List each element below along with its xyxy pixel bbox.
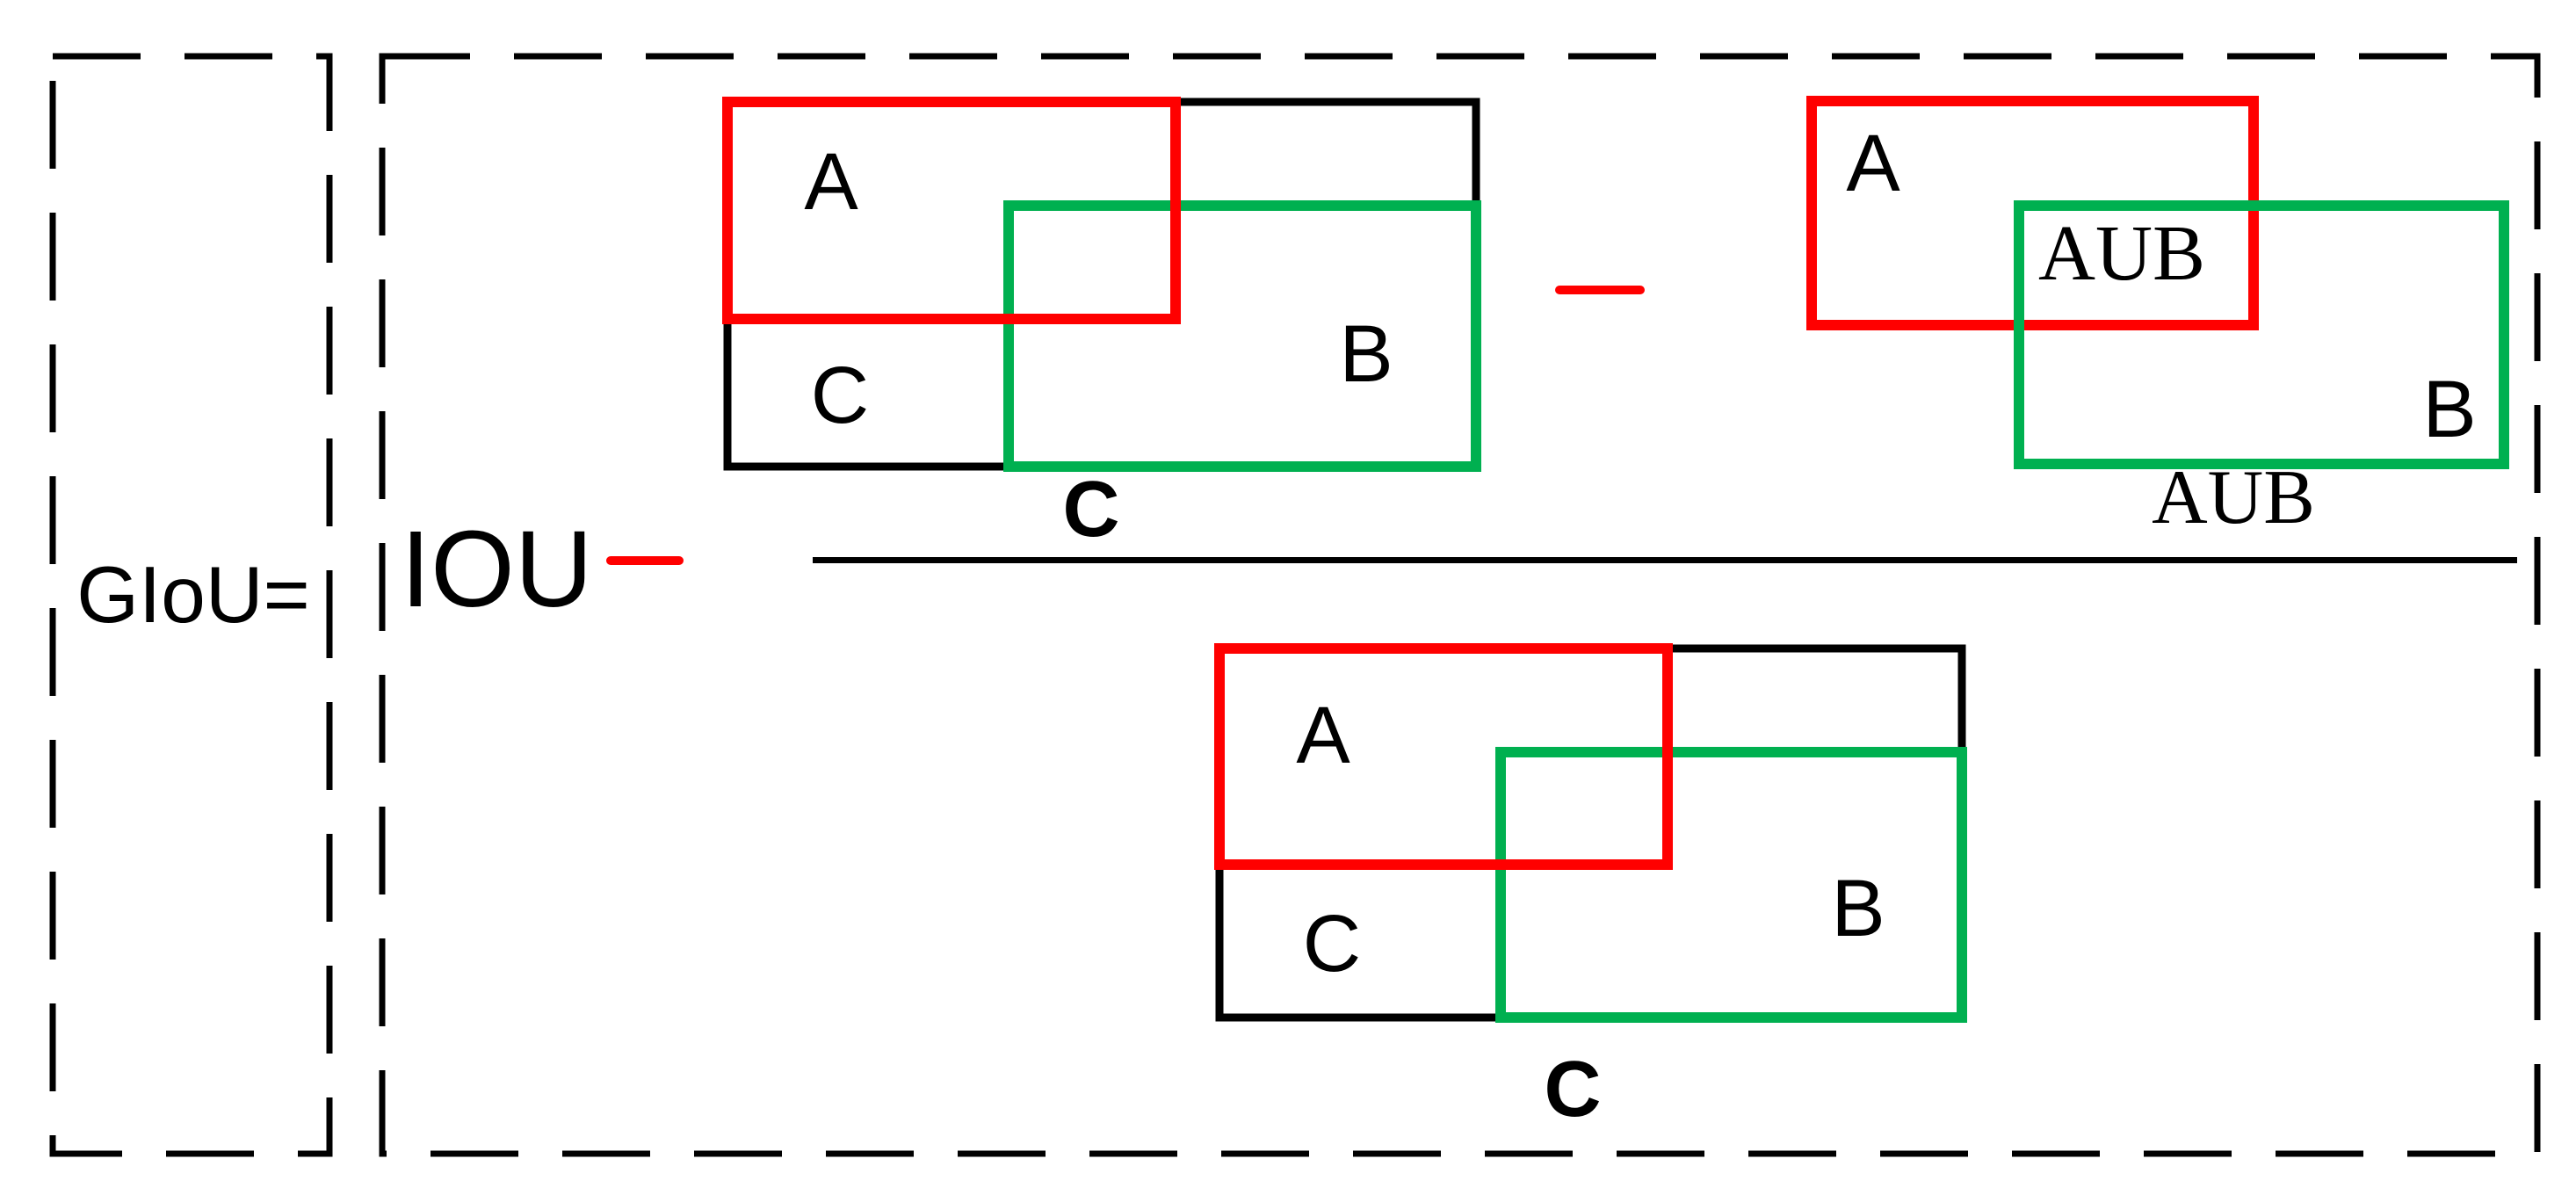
numerator-label-a: A (804, 137, 858, 227)
numerator-box-b (1009, 206, 1476, 467)
denominator-caption-c: C (1545, 1046, 1602, 1133)
numerator-label-b: B (1339, 309, 1393, 399)
union-label-a: A (1846, 119, 1900, 208)
numerator-caption-c: C (1063, 466, 1120, 554)
minus-operator-numerator (1555, 286, 1645, 294)
union-label-b: B (2422, 365, 2476, 454)
iou-text: IOU (401, 510, 593, 630)
denominator-label-c: C (1303, 899, 1361, 989)
union-label-aub: AUB (2038, 210, 2205, 297)
giou-formula-figure: GIoU= IOU A C B C A AUB B AUB A C B C (0, 0, 2576, 1195)
union-caption-aub: AUB (2152, 455, 2315, 540)
rhs-dashed-frame (382, 56, 2537, 1154)
giou-diagram-svg: GIoU= IOU A C B C A AUB B AUB A C B C (0, 0, 2576, 1195)
numerator-label-c: C (811, 351, 869, 440)
denominator-label-b: B (1831, 864, 1885, 953)
giou-equals-text: GIoU= (76, 551, 310, 640)
fraction-bar (813, 557, 2517, 563)
denominator-box-b (1501, 752, 1962, 1018)
minus-operator-outer (606, 556, 684, 565)
denominator-label-a: A (1296, 691, 1350, 780)
